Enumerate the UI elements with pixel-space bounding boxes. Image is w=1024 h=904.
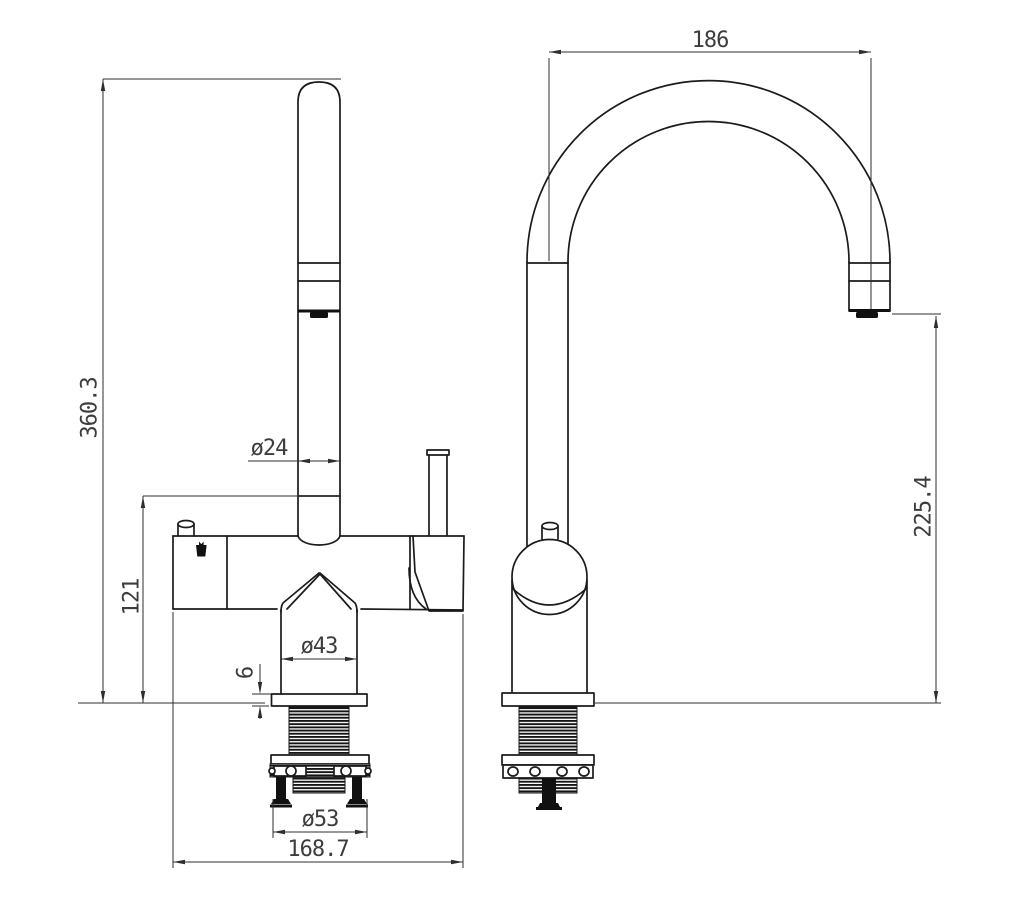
dim-base-depth-label: 168.7	[287, 837, 348, 862]
dim-cone-diameter: ø43	[281, 634, 357, 661]
side-aerator	[856, 312, 878, 318]
side-button	[542, 523, 558, 540]
dim-total-height-label: 360.3	[78, 377, 103, 438]
side-spout-outer-arc	[527, 81, 890, 262]
front-tube-collar	[298, 536, 340, 545]
dim-flange-diameter-label: ø53	[302, 807, 339, 832]
front-base-cone	[281, 573, 357, 612]
front-washer-plate	[271, 755, 369, 764]
front-button	[178, 521, 194, 537]
front-bolt-right	[346, 777, 368, 806]
front-stud-threads	[293, 777, 345, 793]
dim-outlet-height-label: 225.4	[912, 476, 937, 538]
dim-flange-thickness-label: 6	[234, 667, 259, 679]
side-mounting-bracket	[503, 765, 593, 778]
side-view	[502, 81, 890, 809]
front-body-bottom-right	[361, 609, 463, 610]
dimensions: 360.3 121 ø24 ø43	[78, 28, 942, 868]
dim-outlet-height: 225.4	[595, 314, 941, 703]
dim-body-height-label: 121	[120, 579, 145, 616]
front-handle	[409, 450, 464, 611]
side-washer-plate	[502, 755, 594, 765]
front-flange	[272, 694, 368, 706]
dim-tube-diameter: ø24	[248, 436, 340, 463]
dim-flange-thickness: 6	[234, 664, 272, 719]
side-handle-disc	[512, 540, 587, 615]
front-aerator	[310, 312, 328, 318]
drawing-canvas: 360.3 121 ø24 ø43	[0, 0, 1024, 904]
technical-drawing: 360.3 121 ø24 ø43	[0, 0, 1024, 904]
dim-spout-reach: 186	[549, 28, 871, 309]
side-spout-inner-arc	[568, 121, 849, 262]
faucet-icon	[196, 542, 207, 557]
side-threaded-shank	[519, 707, 577, 757]
dim-tube-diameter-label: ø24	[251, 436, 288, 461]
side-nozzle	[849, 262, 890, 318]
dim-spout-reach-label: 186	[692, 28, 729, 53]
front-threaded-shank	[289, 707, 349, 757]
front-view	[173, 82, 464, 806]
dim-body-height: 121	[120, 496, 341, 703]
dim-cone-diameter-label: ø43	[301, 634, 338, 659]
front-mounting-bracket	[269, 764, 371, 777]
front-spout-tube	[298, 82, 340, 536]
side-flange	[502, 693, 594, 706]
